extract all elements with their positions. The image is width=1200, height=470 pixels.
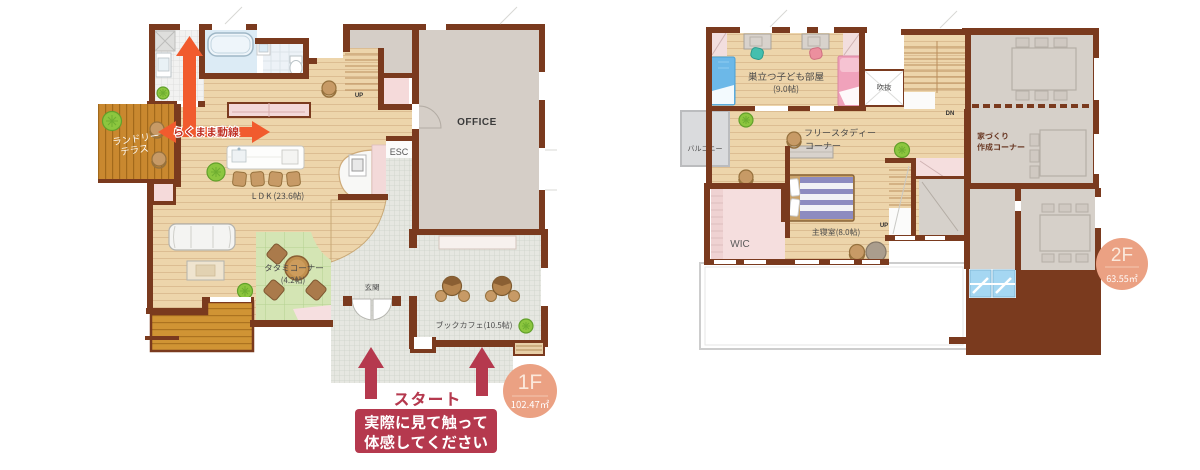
svg-text:WIC: WIC xyxy=(730,239,749,250)
svg-text:2F: 2F xyxy=(1111,245,1133,266)
svg-text:UP: UP xyxy=(355,93,363,99)
svg-text:ESC: ESC xyxy=(390,147,409,157)
svg-text:UP: UP xyxy=(880,223,888,229)
svg-text:1F: 1F xyxy=(518,371,543,394)
svg-text:DN: DN xyxy=(946,111,955,117)
svg-text:OFFICE: OFFICE xyxy=(457,117,497,128)
